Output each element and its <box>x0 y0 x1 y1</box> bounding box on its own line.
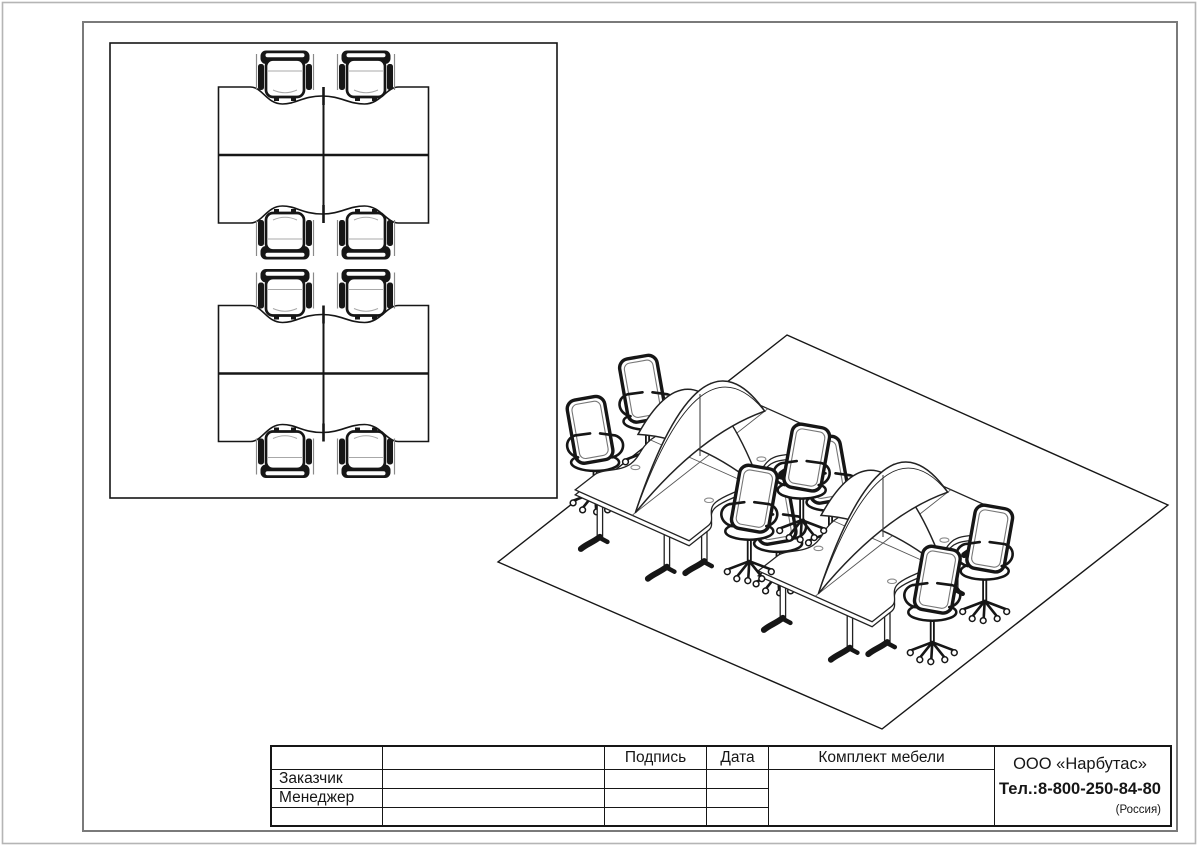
cable-grommet <box>814 546 823 550</box>
office-chair-plan <box>257 428 314 479</box>
manager-value-cell <box>383 789 605 808</box>
desk-cluster-plan <box>219 51 429 260</box>
cable-grommet <box>631 465 640 469</box>
title-block-cell <box>383 747 605 770</box>
company-phone: Тел.:8-800-250-84-80 <box>999 780 1161 799</box>
desk-cluster-plan <box>219 269 429 478</box>
office-chair-plan <box>257 269 314 320</box>
office-chair-plan <box>257 51 314 102</box>
company-country: (Россия) <box>999 804 1161 817</box>
company-name: ООО «Нарбутас» <box>999 755 1161 774</box>
customer-label: Заказчик <box>272 770 383 789</box>
company-info: ООО «Нарбутас» Тел.:8-800-250-84-80 (Рос… <box>995 747 1170 825</box>
office-chair-plan <box>257 209 314 260</box>
cable-grommet <box>940 538 949 542</box>
manager-date-cell <box>707 789 769 808</box>
cable-grommet <box>705 498 714 502</box>
customer-signature-cell <box>605 770 707 789</box>
title-block: Подпись Дата Комплект мебели Заказчик Ме… <box>270 745 1172 827</box>
manager-signature-cell <box>605 789 707 808</box>
drawing-sheet: Подпись Дата Комплект мебели Заказчик Ме… <box>0 0 1200 850</box>
date-header: Дата <box>707 747 769 770</box>
title-block-cell <box>272 808 383 825</box>
signature-header: Подпись <box>605 747 707 770</box>
furniture-set-body-cell <box>769 770 995 825</box>
customer-date-cell <box>707 770 769 789</box>
floor-plan-view <box>110 43 557 498</box>
cable-grommet <box>888 579 897 583</box>
cable-grommet <box>757 457 766 461</box>
manager-label: Менеджер <box>272 789 383 808</box>
title-block-cell <box>707 808 769 825</box>
title-block-cell <box>605 808 707 825</box>
customer-value-cell <box>383 770 605 789</box>
furniture-set-header: Комплект мебели <box>769 747 995 770</box>
title-block-cell <box>272 747 383 770</box>
isometric-view <box>498 335 1168 729</box>
title-block-cell <box>383 808 605 825</box>
drawing-canvas <box>0 0 1200 850</box>
